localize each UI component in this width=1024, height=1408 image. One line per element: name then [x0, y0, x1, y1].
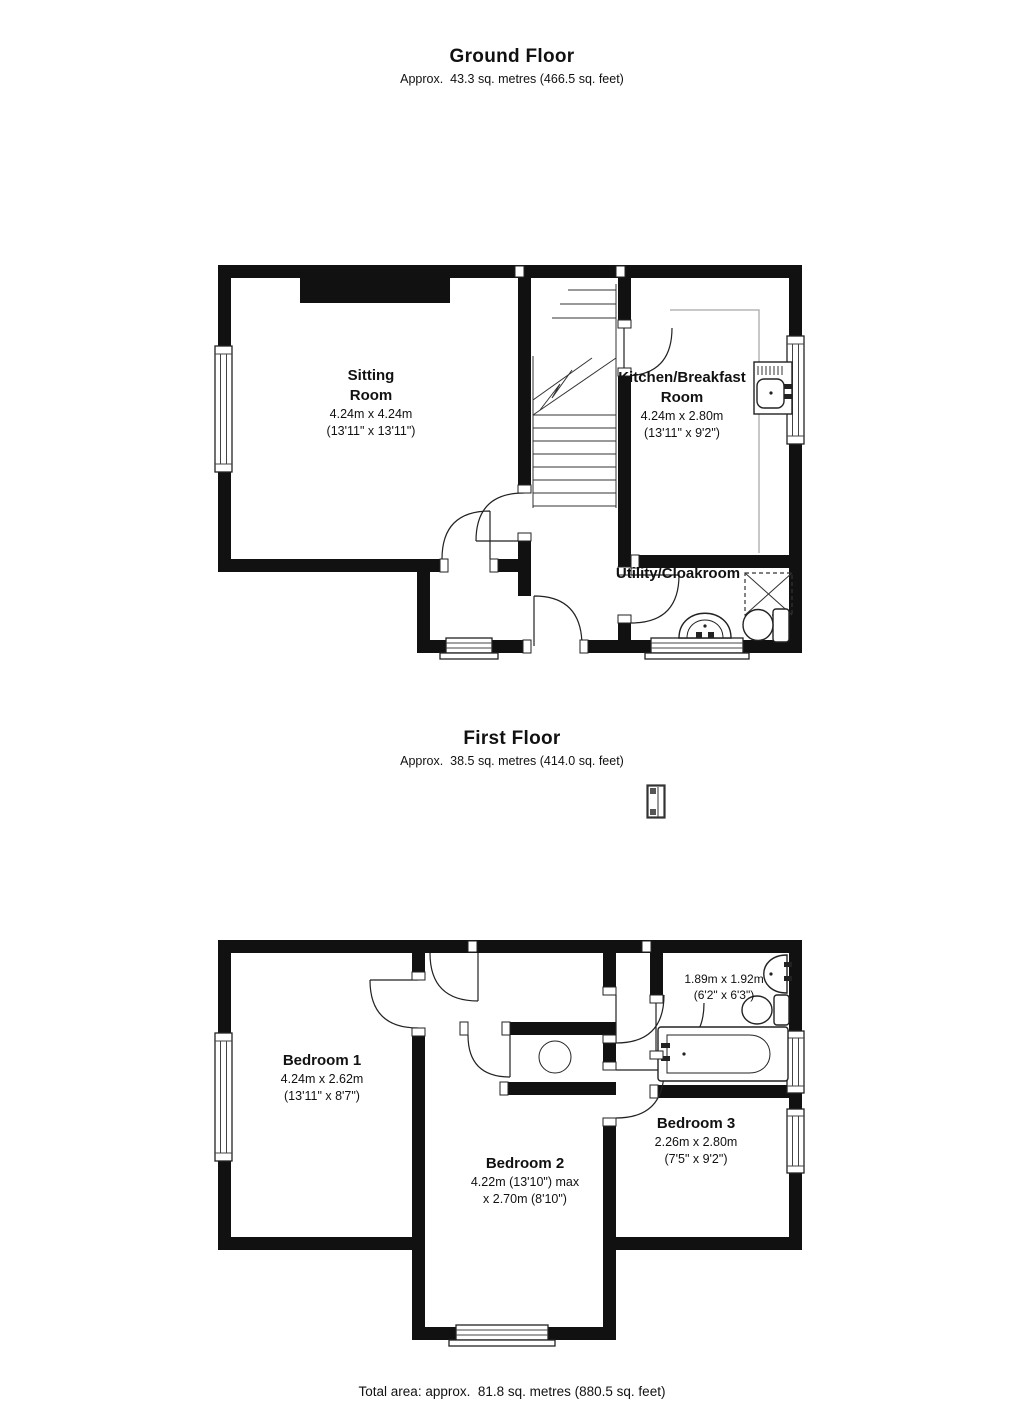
ground-floor-header: Ground Floor Approx. 43.3 sq. metres (46… — [212, 46, 812, 86]
bedroom3-label: Bedroom 3 2.26m x 2.80m (7'5" x 9'2") — [596, 1114, 796, 1168]
ground-floor-area: Approx. 43.3 sq. metres (466.5 sq. feet) — [212, 72, 812, 86]
bedroom1-label: Bedroom 1 4.24m x 2.62m (13'11" x 8'7") — [222, 1051, 422, 1105]
first-floor-area: Approx. 38.5 sq. metres (414.0 sq. feet) — [212, 754, 812, 768]
ground-floor-plan — [212, 260, 812, 672]
chimney-breast — [300, 278, 450, 303]
bedroom2-window — [449, 1325, 555, 1346]
porch-window — [440, 638, 498, 659]
ground-floor-title: Ground Floor — [212, 46, 812, 68]
sitting-room-label: Sitting Room 4.24m x 4.24m (13'11" x 13'… — [271, 366, 471, 440]
landing-window-icon — [646, 784, 668, 820]
sitting-room-window — [215, 346, 232, 472]
door-arc-hall — [476, 493, 524, 541]
door-arc-sitting-room — [442, 511, 490, 559]
toilet-icon — [743, 609, 789, 642]
washbasin-icon — [679, 613, 731, 638]
utility-label: Utility/Cloakroom — [598, 564, 758, 584]
round-feature-icon — [539, 1041, 571, 1073]
ground-floor-walls — [218, 265, 802, 653]
first-floor-title: First Floor — [212, 728, 812, 750]
door-arc-stairwell — [468, 1035, 510, 1077]
ground-floor-door-frames — [440, 266, 639, 653]
kitchen-label: Kitchen/Breakfast Room 4.24m x 2.80m (13… — [592, 368, 772, 442]
bath-icon — [658, 1027, 788, 1081]
first-floor-header: First Floor Approx. 38.5 sq. metres (414… — [212, 728, 812, 768]
door-arc-bedroom1 — [370, 980, 418, 1028]
bathroom-window — [787, 1031, 804, 1093]
utility-window — [645, 638, 749, 659]
floorplan-page: Ground Floor Approx. 43.3 sq. metres (46… — [0, 0, 1024, 1408]
bathroom-dims-label: 1.89m x 1.92m (6'2" x 6'3") — [650, 971, 798, 1003]
door-arc-bedroom2 — [430, 953, 478, 1001]
door-arc-front-entrance — [534, 596, 582, 646]
bedroom2-label: Bedroom 2 4.22m (13'10") max x 2.70m (8'… — [425, 1154, 625, 1208]
total-area-text: Total area: approx. 81.8 sq. metres (880… — [212, 1384, 812, 1399]
